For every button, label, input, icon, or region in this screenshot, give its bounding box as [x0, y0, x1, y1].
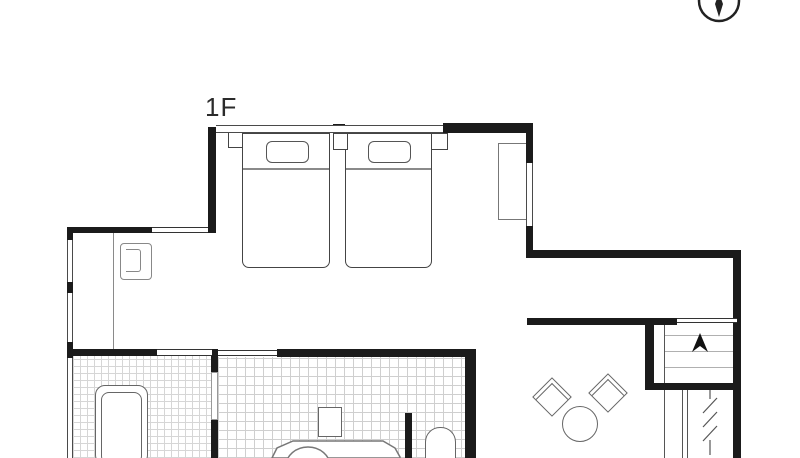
wall-stair-bottom [645, 383, 737, 390]
window-left-2 [67, 293, 73, 342]
window-left-3 [67, 358, 73, 458]
closet [498, 143, 527, 220]
stair-break-line [703, 390, 717, 455]
stair-tread-2 [664, 351, 733, 352]
bed-left-fold-line [243, 168, 329, 170]
nightstand-right [431, 133, 448, 150]
wall-bedroom-left [208, 127, 216, 233]
wall-bath-center-top [277, 349, 476, 357]
stair-stringer-line [664, 325, 665, 383]
door-bath-divider [211, 372, 218, 420]
wall-corridor-top [527, 250, 741, 258]
nightstand-left [228, 132, 243, 148]
bathtub-left-inner [101, 392, 142, 458]
floor-label: 1F [205, 92, 237, 123]
window-right [526, 163, 533, 226]
opening-bath-left [157, 349, 212, 356]
wall-top-right [443, 123, 533, 133]
entry-chair-seat [126, 249, 141, 272]
compass-icon [699, 0, 739, 21]
wall-entry-top [68, 227, 152, 233]
armchair-left-backrest [536, 383, 569, 416]
stair-tread-3 [664, 367, 733, 368]
armchair-right [588, 373, 628, 413]
stair-rail [677, 318, 737, 323]
wall-left-1 [67, 227, 73, 240]
wall-corridor-bottom [527, 318, 677, 325]
floor-plan: 1F [0, 0, 800, 458]
lower-stair-line-1 [664, 390, 665, 458]
wall-stair-left [645, 322, 654, 390]
bath-stool [318, 407, 342, 437]
wall-bath-left-top [72, 349, 157, 356]
nightstand-center [333, 133, 348, 150]
window-left-1 [67, 240, 73, 282]
wall-bath-divider-upper [211, 349, 218, 372]
wall-right-main [733, 253, 741, 458]
toilet [425, 427, 456, 458]
wall-left-2 [67, 282, 73, 293]
round-table [562, 406, 598, 442]
opening-bath-center [218, 350, 277, 356]
stair-tread-1 [664, 335, 733, 336]
entry-chair [120, 243, 152, 280]
window-top [216, 125, 443, 133]
pillow-right [368, 141, 411, 163]
entry-partition-line [113, 233, 114, 349]
bed-right-fold-line [346, 168, 431, 170]
wall-toilet-partition [405, 413, 412, 458]
lower-stair-line-3 [687, 390, 688, 458]
wall-bath-divider-lower [211, 420, 218, 458]
lower-stair-line-2 [682, 390, 683, 458]
armchair-right-backrest [592, 379, 625, 412]
opening-entry [152, 227, 208, 233]
wall-right-upper [526, 127, 533, 163]
wall-bath-center-right [465, 352, 476, 458]
pillow-left [266, 141, 309, 163]
